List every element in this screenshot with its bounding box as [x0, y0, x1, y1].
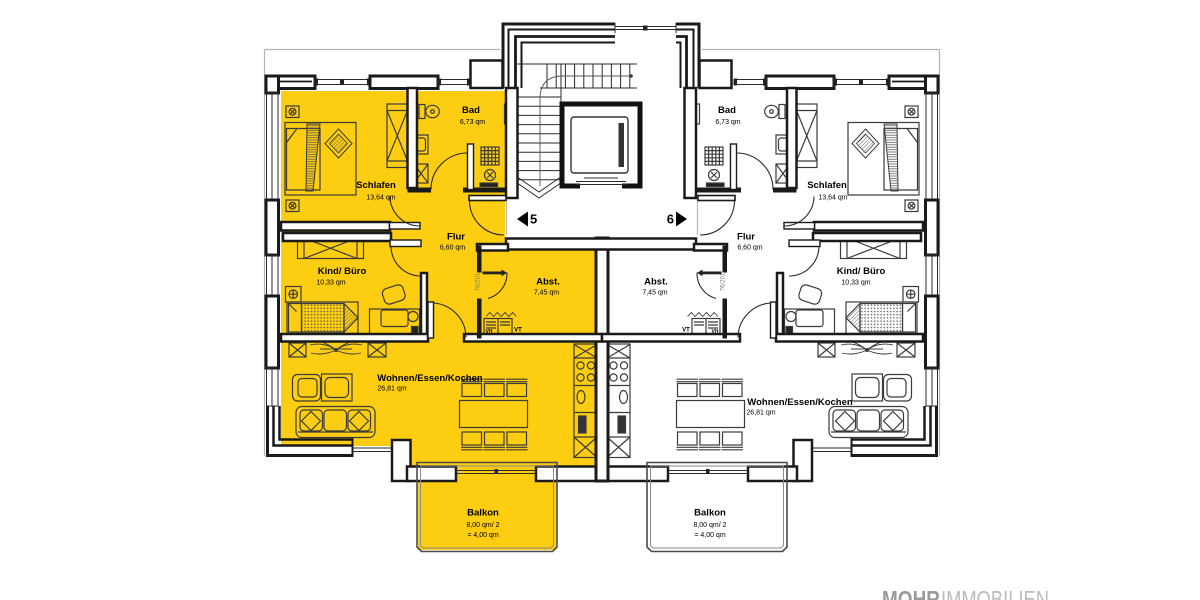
svg-text:6,73 qm: 6,73 qm	[460, 119, 485, 126]
svg-text:76/201: 76/201	[476, 272, 482, 291]
svg-text:13,64 qm: 13,64 qm	[366, 195, 395, 202]
svg-text:Bad: Bad	[718, 105, 736, 116]
svg-text:26,81 qm: 26,81 qm	[746, 410, 775, 417]
svg-text:5: 5	[530, 212, 537, 227]
svg-text:Balkon: Balkon	[694, 508, 726, 519]
svg-text:10,33 qm: 10,33 qm	[841, 280, 870, 287]
svg-text:Wohnen/Essen/Kochen: Wohnen/Essen/Kochen	[377, 373, 483, 384]
svg-text:26,81 qm: 26,81 qm	[377, 386, 406, 393]
svg-text:Balkon: Balkon	[467, 508, 499, 519]
svg-text:= 4,00 qm: = 4,00 qm	[694, 532, 725, 539]
svg-text:Kind/ Büro: Kind/ Büro	[837, 266, 886, 277]
svg-text:Flur: Flur	[737, 232, 755, 243]
svg-text:13,64 qm: 13,64 qm	[818, 195, 847, 202]
svg-text:Abst.: Abst.	[644, 277, 668, 288]
svg-text:Schlafen: Schlafen	[356, 180, 396, 191]
svg-text:Abst.: Abst.	[536, 277, 560, 288]
svg-text:6,73 qm: 6,73 qm	[715, 119, 740, 126]
svg-text:6: 6	[667, 212, 674, 227]
svg-text:8,00 qm/ 2: 8,00 qm/ 2	[466, 522, 499, 529]
svg-text:10,33 qm: 10,33 qm	[316, 280, 345, 287]
svg-text:6,60 qm: 6,60 qm	[440, 245, 465, 252]
svg-text:Flur: Flur	[447, 232, 465, 243]
svg-text:IMMOBILIEN: IMMOBILIEN	[941, 586, 1049, 600]
svg-text:7,45 qm: 7,45 qm	[642, 290, 667, 297]
svg-text:Wohnen/Essen/Kochen: Wohnen/Essen/Kochen	[747, 397, 853, 408]
svg-text:VT: VT	[682, 328, 690, 334]
svg-text:Bad: Bad	[462, 105, 480, 116]
svg-text:8,00 qm/ 2: 8,00 qm/ 2	[693, 522, 726, 529]
svg-text:= 4,00 qm: = 4,00 qm	[467, 532, 498, 539]
svg-text:76/201: 76/201	[721, 272, 727, 291]
svg-text:Kind/ Büro: Kind/ Büro	[318, 266, 367, 277]
svg-text:VT: VT	[514, 328, 522, 334]
svg-text:6,60 qm: 6,60 qm	[737, 245, 762, 252]
svg-text:MOHR: MOHR	[882, 586, 940, 600]
svg-text:Schlafen: Schlafen	[807, 180, 847, 191]
svg-text:7,45 qm: 7,45 qm	[534, 290, 559, 297]
